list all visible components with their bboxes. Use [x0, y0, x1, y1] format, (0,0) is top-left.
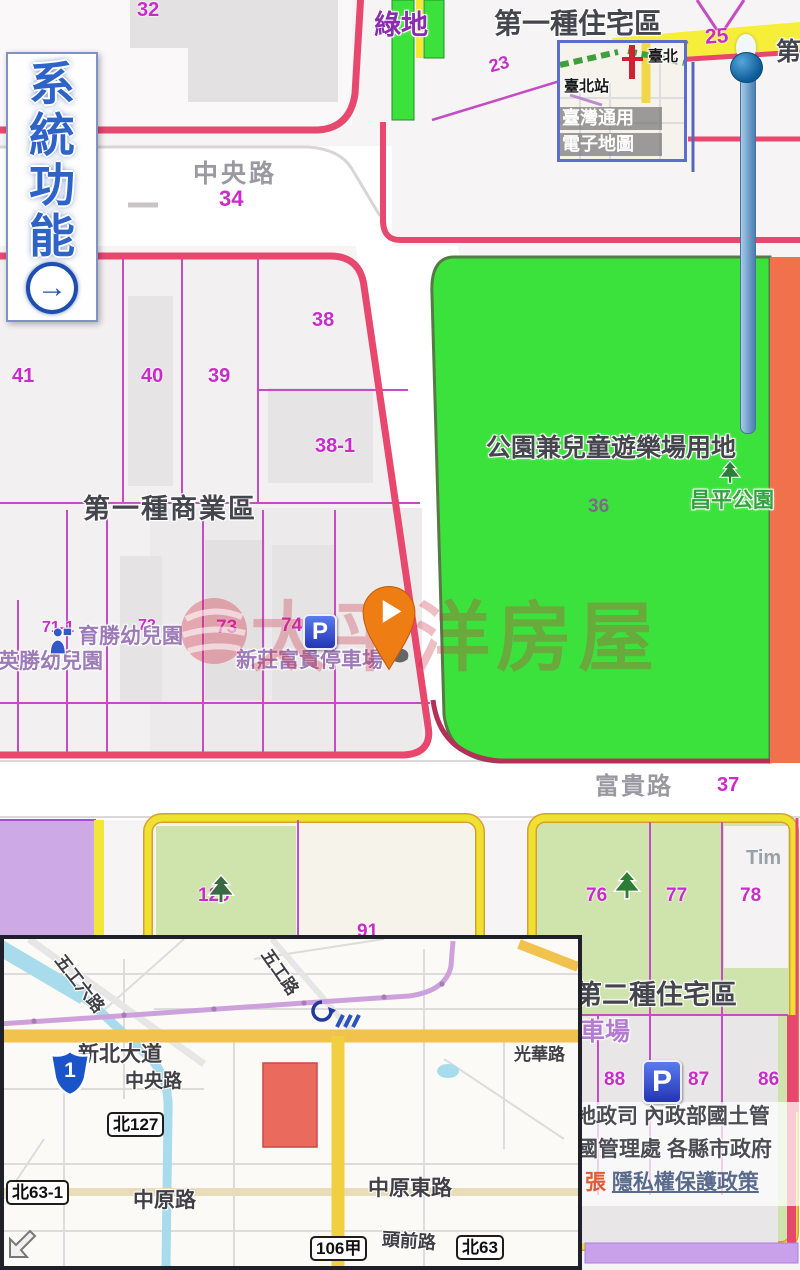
road-badge-127: 北127: [107, 1112, 164, 1137]
zone-green-space: 綠地: [374, 12, 428, 39]
attribution-line2: 國管理處 各縣市政府: [577, 1139, 772, 1160]
parking-icon: P: [303, 614, 337, 650]
inset-road-zhongyuan: 中原路: [133, 1184, 196, 1214]
privacy-policy-link[interactable]: 隱私權保護政策: [612, 1171, 759, 1194]
parcel-87: 87: [688, 1070, 709, 1089]
location-pin-icon: [360, 584, 418, 672]
parcel-76: 76: [586, 886, 607, 905]
park-name: 昌平公園: [690, 490, 774, 511]
school-icon: [48, 626, 74, 656]
inset-road-zhongyang: 中央路: [125, 1066, 182, 1093]
purple-strip: [585, 1243, 798, 1263]
inset-road-touqian: 頭前路: [381, 1225, 437, 1255]
highlight-building: [263, 1063, 317, 1147]
parcel-37: 37: [717, 775, 739, 795]
parcel-40: 40: [141, 366, 163, 386]
expand-arrow-icon[interactable]: [10, 1231, 35, 1257]
system-functions-panel[interactable]: 系 統 功 能 →: [6, 52, 98, 322]
parcel-38-1: 38-1: [315, 436, 355, 456]
thumbnail-station-label: 臺北站: [564, 79, 609, 94]
attribution-prefix: 張: [585, 1171, 606, 1194]
zone-residential-type1: 第一種住宅區: [494, 10, 662, 38]
tree-icon: [206, 874, 236, 906]
attribution-line3: 張 隱私權保護政策: [585, 1172, 759, 1193]
purple-zone-block: [0, 820, 95, 938]
zoom-slider-bar[interactable]: [740, 70, 756, 434]
parcel-32: 32: [137, 0, 159, 20]
parcel-25: 25: [704, 25, 729, 48]
thumbnail-caption-line1: 臺灣通用: [560, 107, 662, 130]
parcel-78: 78: [740, 886, 761, 905]
layer-thumbnail[interactable]: 臺北站 臺北 臺灣通用 電子地圖: [557, 40, 687, 162]
thumbnail-corner-label: 臺北: [648, 49, 678, 64]
parcel-86: 86: [758, 1070, 779, 1089]
attribution-line1: 地政司 內政部國土管: [575, 1106, 770, 1127]
zoom-slider-knob[interactable]: [730, 52, 763, 83]
parcel-74: 74: [281, 616, 302, 635]
parcel-39: 39: [208, 366, 230, 386]
zone-park-playground: 公園兼兒童遊樂場用地: [486, 436, 736, 461]
road-badge-106: 106甲: [310, 1236, 367, 1261]
highway-number: 1: [50, 1059, 90, 1083]
poi-kindergarten-yusheng: 育勝幼兒園: [78, 626, 183, 647]
zone-partial-char: 第: [776, 40, 800, 65]
expand-arrow-icon[interactable]: →: [26, 262, 78, 314]
parking-icon: P: [642, 1060, 682, 1104]
parcel-38: 38: [312, 310, 334, 330]
zone-commercial-type1: 第一種商業區: [83, 496, 257, 523]
inset-road-xinbei: 新北大道: [78, 1038, 162, 1068]
parcel-36: 36: [588, 497, 609, 516]
inset-road-guanghua: 光華路: [514, 1040, 565, 1065]
zone-residential-type2: 第二種住宅區: [575, 982, 737, 1009]
orange-zone-strip: [770, 257, 800, 763]
map-viewer: 32 綠地 第一種住宅區 25 23 第 中央路 34 38 41 40 39 …: [0, 0, 800, 1270]
road-zhongyang: 中央路: [193, 162, 277, 187]
system-panel-char: 系: [29, 60, 75, 108]
parcel-23: 23: [487, 53, 511, 76]
parcel-77: 77: [666, 886, 687, 905]
fugui-road-shape: [0, 758, 800, 820]
highway-shield: 1: [50, 1050, 90, 1096]
thumbnail-caption-line2: 電子地圖: [560, 133, 662, 156]
inset-road-zhongyuan-east: 中原東路: [368, 1172, 452, 1202]
inset-overview-map[interactable]: 1 五工六路 五工路 新北大道 中央路 光華路 中原路 中原東路 頭前路 北12…: [0, 935, 582, 1270]
system-panel-char: 功: [29, 161, 75, 209]
tree-icon: [718, 460, 742, 486]
road-badge-63-1: 北63-1: [6, 1180, 69, 1205]
parcel-88: 88: [604, 1070, 625, 1089]
parcel-73: 73: [216, 618, 237, 637]
tree-icon: [612, 870, 642, 902]
label-parking-partial: 車場: [580, 1020, 630, 1045]
parcel-41: 41: [12, 366, 34, 386]
label-tim-partial: Tim: [746, 848, 781, 868]
parcel-34: 34: [219, 188, 243, 210]
road-fugui: 富貴路: [595, 775, 673, 799]
system-panel-char: 能: [29, 212, 75, 260]
system-panel-char: 統: [29, 111, 75, 159]
road-badge-63: 北63: [456, 1235, 504, 1260]
